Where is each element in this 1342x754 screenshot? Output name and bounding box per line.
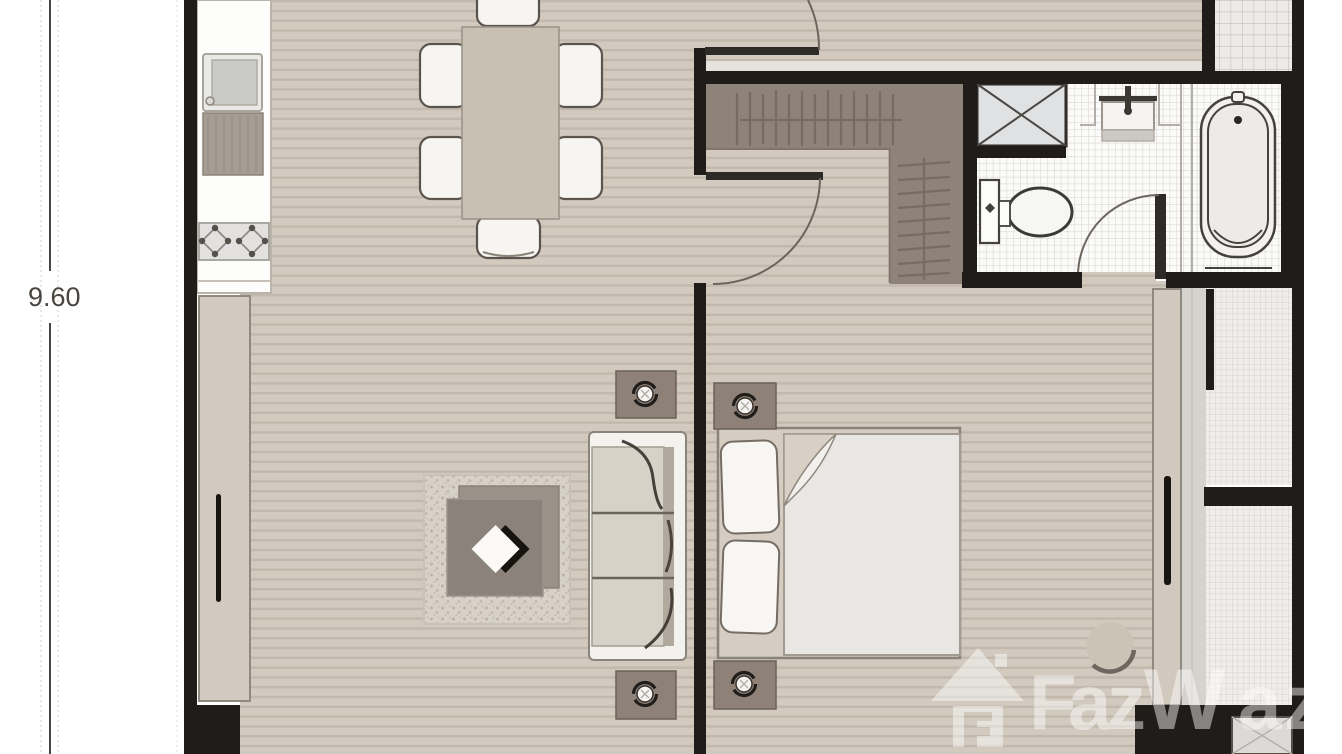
svg-text:a: a [1068, 658, 1112, 746]
svg-text:W: W [1144, 652, 1226, 748]
svg-text:a: a [1238, 658, 1282, 746]
svg-text:9.60: 9.60 [28, 282, 81, 312]
svg-text:z: z [1284, 658, 1323, 746]
svg-text:z: z [1107, 658, 1146, 746]
